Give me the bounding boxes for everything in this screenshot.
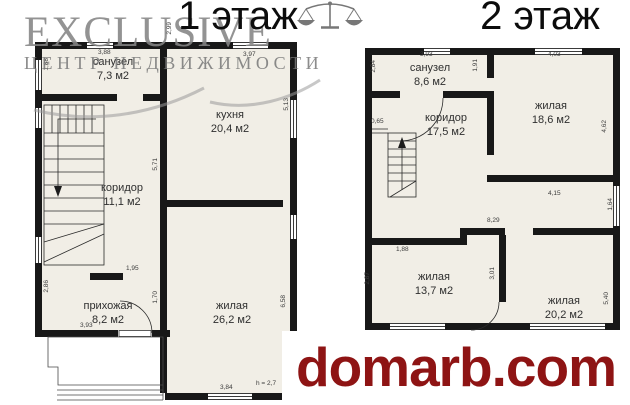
site-watermark-box: domarb.com — [282, 331, 630, 405]
floor2-title: 2 этаж — [455, 0, 625, 39]
floorplan-image: EXCLUSIVE ЦЕНТР НЕДВИЖИМОСТИ 1 этаж 2 эт… — [0, 0, 630, 405]
site-url-text: domarb.com — [282, 331, 630, 403]
watermark-flourishes — [34, 80, 320, 117]
floor1-title: 1 этаж — [158, 0, 318, 39]
watermark-tagline: ЦЕНТР НЕДВИЖИМОСТИ — [24, 53, 323, 74]
